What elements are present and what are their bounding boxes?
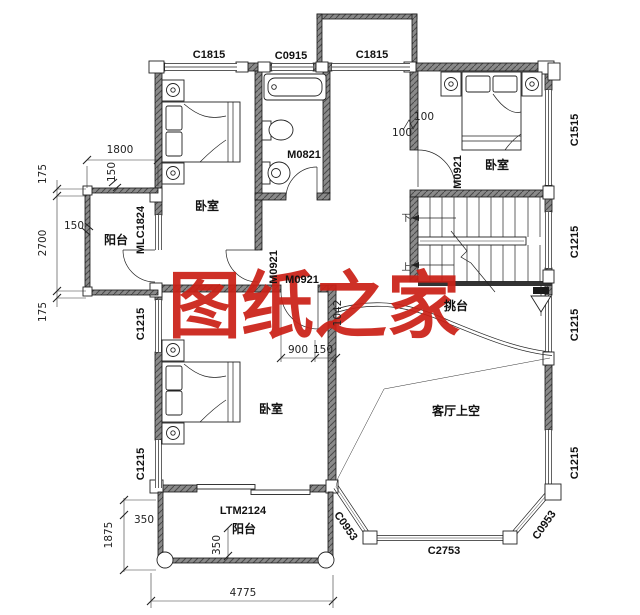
dim-150-hall: 150 <box>313 344 333 356</box>
dim-175-top: 175 <box>37 164 49 184</box>
window-label-c1515: C1515 <box>569 114 581 146</box>
window-label-c0915: C0915 <box>275 50 307 62</box>
dim-150-wall-top: 150 <box>106 162 118 182</box>
bathtub <box>264 74 326 100</box>
room-label-balcony-bottom: 阳台 <box>232 521 256 536</box>
window-c1215-right-upper <box>545 212 552 268</box>
window-label-c1215-right-mid: C1215 <box>569 309 581 341</box>
room-label-living-void: 客厅上空 <box>431 403 480 418</box>
floor-plan-page: 图纸之家 C1815 C0915 C1815 C1515 C1215 C1215… <box>0 0 640 615</box>
room-label-tiaotai: 挑台 <box>444 298 468 313</box>
window-c1215-left-upper <box>155 300 162 352</box>
window-label-c1215-right-upper: C1215 <box>569 226 581 258</box>
dim-4775: 4775 <box>230 587 257 599</box>
round-column-right <box>318 552 334 568</box>
door-label-mlc1824: MLC1824 <box>135 205 147 254</box>
stair-label-up: 上 <box>401 262 410 272</box>
window-mlc1824-glazing <box>155 215 162 250</box>
dim-1875: 1875 <box>103 522 115 549</box>
window-c1815-terrace <box>332 63 410 71</box>
washbasin <box>262 120 293 140</box>
room-label-balcony-left: 阳台 <box>104 232 128 247</box>
window-c1515 <box>545 90 552 185</box>
dim-175-bottom: 175 <box>37 302 49 322</box>
door-label-ltm2124: LTM2124 <box>220 505 267 517</box>
stair-label-down: 下 <box>401 213 410 223</box>
floor-plan-drawing: 图纸之家 C1815 C0915 C1815 C1515 C1215 C1215… <box>0 0 640 615</box>
door-label-m0921-bedroom-tr: M0921 <box>452 155 464 189</box>
dim-1042: 1042 <box>332 300 344 327</box>
window-c0915 <box>272 63 313 71</box>
dim-100-a: 100 <box>414 111 434 123</box>
room-label-bedroom-tr: 卧室 <box>485 157 509 172</box>
dim-1800: 1800 <box>107 144 134 156</box>
dim-100-b: 100 <box>392 127 412 139</box>
dim-2700: 2700 <box>37 230 49 257</box>
room-label-bedroom-tl: 卧室 <box>195 198 219 213</box>
window-label-c1815-terrace: C1815 <box>356 49 388 61</box>
dim-900: 900 <box>288 344 308 356</box>
door-label-m0921-hall: M0921 <box>285 274 319 286</box>
window-label-c1215-right-lower: C1215 <box>569 447 581 479</box>
window-c1215-right-lower <box>545 430 552 488</box>
toilet <box>262 162 290 184</box>
room-label-bedroom-bl: 卧室 <box>259 401 283 416</box>
dim-350-left: 350 <box>134 514 154 526</box>
window-c1215-left-lower <box>155 440 162 488</box>
door-label-m0821: M0821 <box>287 149 321 161</box>
window-label-c1215-left-upper: C1215 <box>135 308 147 340</box>
dim-350-bottom: 350 <box>211 535 223 555</box>
dim-150-left: 150 <box>64 220 84 232</box>
window-c1815-left <box>165 63 237 71</box>
window-label-c1815-left: C1815 <box>193 49 225 61</box>
door-label-m0921-bedroom-tl: M0921 <box>268 250 280 284</box>
window-label-c1215-left-lower: C1215 <box>135 448 147 480</box>
window-label-c2753: C2753 <box>428 545 460 557</box>
round-column-left <box>157 552 173 568</box>
